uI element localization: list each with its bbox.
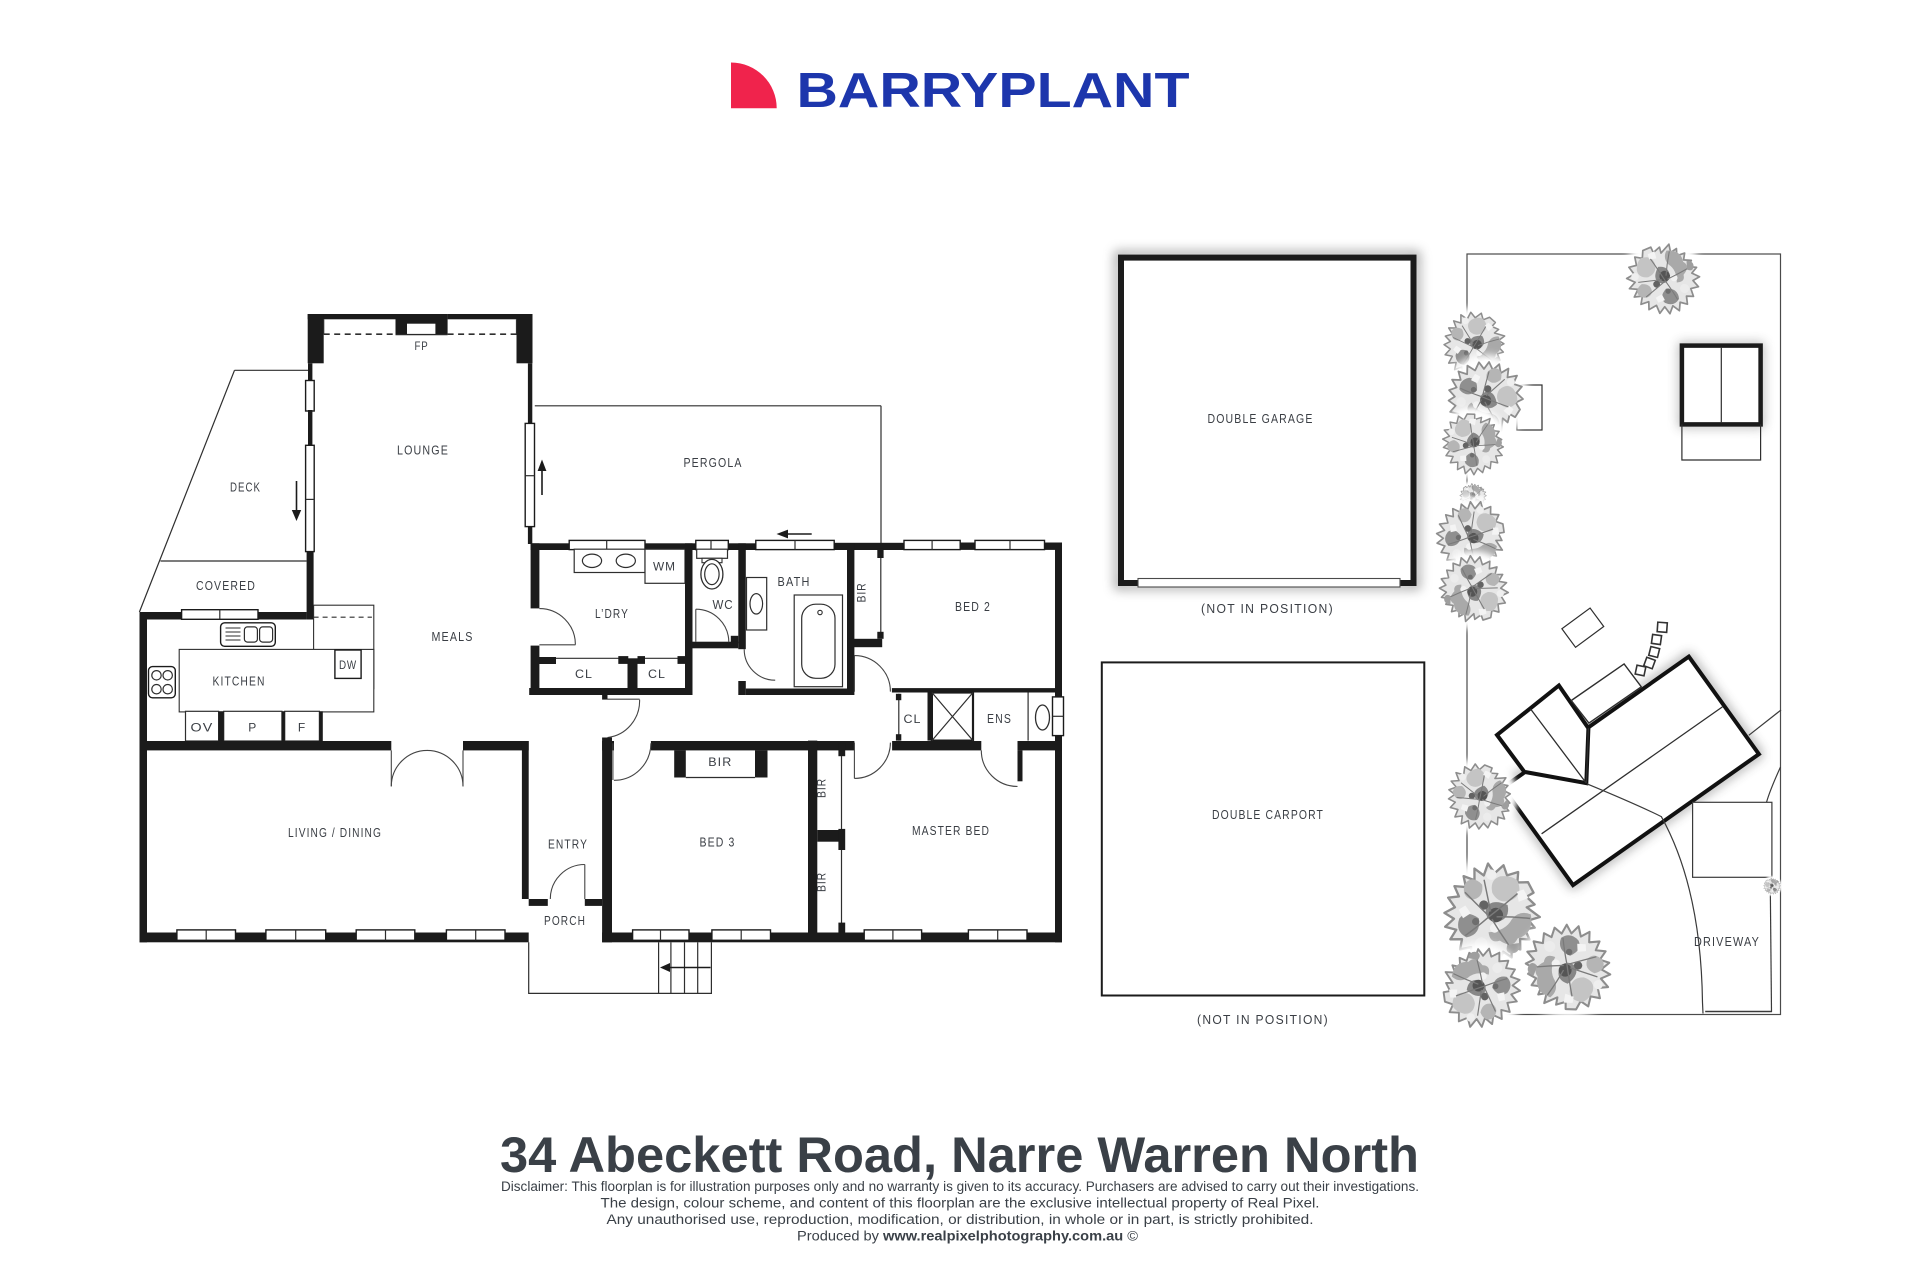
svg-text:BIR: BIR bbox=[708, 755, 732, 769]
svg-text:Any unauthorised use, reproduc: Any unauthorised use, reproduction, modi… bbox=[607, 1212, 1314, 1227]
svg-text:F: F bbox=[298, 721, 306, 735]
svg-text:BED 2: BED 2 bbox=[955, 599, 991, 614]
svg-text:Disclaimer: This floorplan is: Disclaimer: This floorplan is for illust… bbox=[501, 1179, 1419, 1194]
svg-text:WM: WM bbox=[653, 560, 676, 574]
svg-text:ENS: ENS bbox=[987, 711, 1012, 726]
svg-text:BIR: BIR bbox=[815, 778, 829, 798]
svg-text:LOUNGE: LOUNGE bbox=[397, 443, 449, 458]
svg-text:OV: OV bbox=[191, 721, 214, 735]
svg-text:P: P bbox=[248, 721, 257, 735]
svg-text:FP: FP bbox=[415, 339, 429, 353]
svg-text:CL: CL bbox=[648, 667, 666, 681]
svg-text:BIR: BIR bbox=[855, 583, 869, 603]
svg-text:BIR: BIR bbox=[815, 872, 829, 892]
svg-text:DRIVEWAY: DRIVEWAY bbox=[1694, 934, 1760, 949]
svg-text:DOUBLE CARPORT: DOUBLE CARPORT bbox=[1212, 807, 1324, 822]
svg-text:Produced by www.realpixelphoto: Produced by www.realpixelphotography.com… bbox=[797, 1229, 1138, 1244]
svg-text:ENTRY: ENTRY bbox=[548, 837, 588, 852]
svg-text:MEALS: MEALS bbox=[432, 629, 474, 644]
svg-text:DECK: DECK bbox=[230, 480, 261, 495]
svg-text:DOUBLE GARAGE: DOUBLE GARAGE bbox=[1208, 411, 1314, 426]
svg-text:PORCH: PORCH bbox=[544, 913, 586, 928]
svg-text:WC: WC bbox=[713, 597, 734, 612]
svg-text:(NOT IN POSITION): (NOT IN POSITION) bbox=[1197, 1012, 1329, 1027]
svg-text:BATH: BATH bbox=[778, 574, 811, 589]
svg-text:COVERED: COVERED bbox=[196, 578, 256, 593]
svg-text:L’DRY: L’DRY bbox=[595, 606, 629, 621]
svg-text:The design, colour scheme, and: The design, colour scheme, and content o… bbox=[601, 1196, 1320, 1211]
svg-text:LIVING / DINING: LIVING / DINING bbox=[288, 825, 382, 840]
svg-text:DW: DW bbox=[339, 658, 357, 672]
svg-text:BARRYPLANT: BARRYPLANT bbox=[797, 64, 1190, 118]
svg-text:MASTER BED: MASTER BED bbox=[912, 823, 990, 838]
svg-text:BED 3: BED 3 bbox=[700, 835, 736, 850]
svg-text:CL: CL bbox=[575, 667, 593, 681]
svg-text:PERGOLA: PERGOLA bbox=[684, 455, 743, 470]
svg-text:(NOT IN POSITION): (NOT IN POSITION) bbox=[1201, 601, 1334, 616]
svg-text:CL: CL bbox=[904, 712, 922, 726]
svg-text:KITCHEN: KITCHEN bbox=[213, 674, 266, 689]
svg-text:34 Abeckett Road, Narre Warren: 34 Abeckett Road, Narre Warren North bbox=[500, 1127, 1419, 1183]
